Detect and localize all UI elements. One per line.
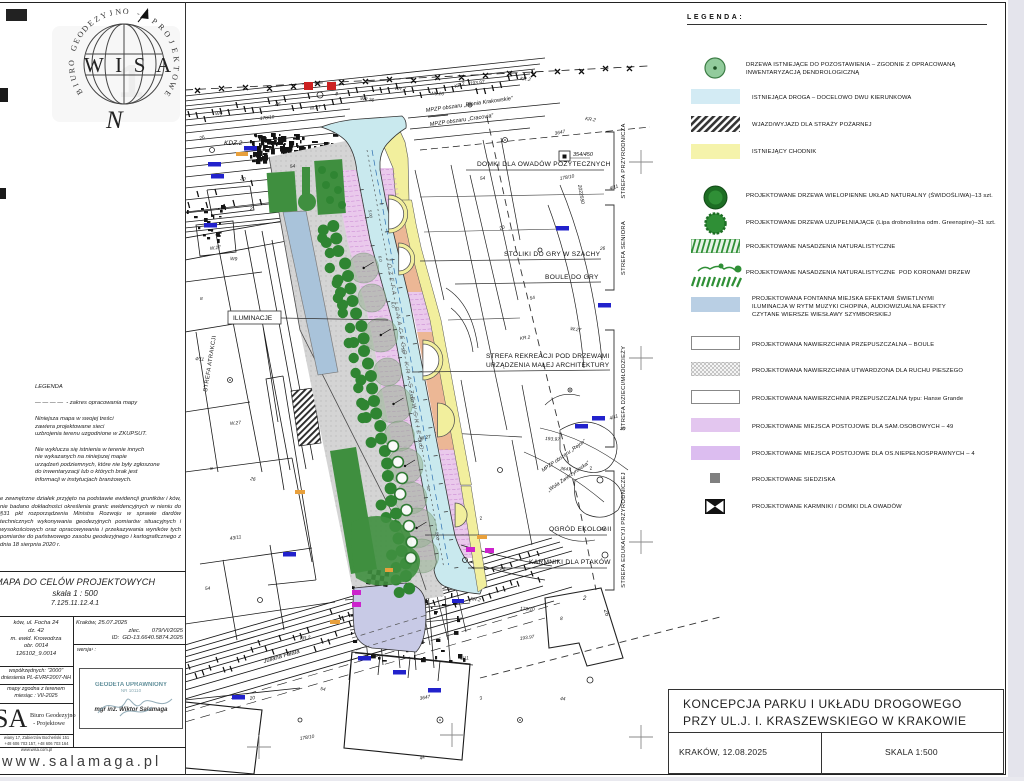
svg-text:W.27: W.27 xyxy=(210,245,222,252)
svg-text:W.27: W.27 xyxy=(230,420,242,427)
svg-text:8: 8 xyxy=(560,616,563,622)
svg-text:20: 20 xyxy=(248,695,256,702)
svg-text:54: 54 xyxy=(529,295,536,302)
svg-text:54: 54 xyxy=(320,686,327,693)
svg-text:KR.2: KR.2 xyxy=(585,116,597,123)
svg-text:B: B xyxy=(74,87,84,96)
svg-text:W.27: W.27 xyxy=(570,326,582,334)
svg-text:178/10: 178/10 xyxy=(260,114,276,122)
svg-text:KR.2: KR.2 xyxy=(520,76,531,83)
svg-text:54: 54 xyxy=(290,163,296,170)
svg-text:2: 2 xyxy=(478,515,484,522)
svg-text:2: 2 xyxy=(582,596,587,602)
svg-text:P: P xyxy=(150,16,159,26)
svg-text:J: J xyxy=(108,8,113,18)
svg-text:Y: Y xyxy=(99,10,108,21)
svg-text:20: 20 xyxy=(619,426,626,432)
svg-text:W8.26: W8.26 xyxy=(430,91,444,97)
svg-text:193.97: 193.97 xyxy=(519,634,535,642)
svg-text:R: R xyxy=(67,67,77,74)
svg-text:KARMNIKI DLA PTAKÓW: KARMNIKI DLA PTAKÓW xyxy=(529,557,611,566)
svg-text:BOULE DO GRY: BOULE DO GRY xyxy=(545,274,599,281)
svg-text:URZĄDZENIA MAŁEJ ARCHITEKTURY: URZĄDZENIA MAŁEJ ARCHITEKTURY xyxy=(486,362,610,369)
svg-text:3647: 3647 xyxy=(560,466,572,473)
svg-text:4/11: 4/11 xyxy=(195,356,205,363)
svg-text:KR.2: KR.2 xyxy=(395,86,406,93)
svg-text:O: O xyxy=(123,7,129,16)
svg-text:8: 8 xyxy=(200,296,203,302)
svg-text:J: J xyxy=(167,39,176,46)
svg-text:W9: W9 xyxy=(230,256,238,263)
svg-text:ILUMINACJE: ILUMINACJE xyxy=(233,315,273,322)
svg-text:DOMKI DLA OWADÓW POŻYTECZNYCH: DOMKI DLA OWADÓW POŻYTECZNYCH xyxy=(477,159,611,168)
svg-text:W9: W9 xyxy=(215,111,223,117)
svg-text:I: I xyxy=(71,82,80,88)
svg-text:E: E xyxy=(162,89,172,98)
svg-text:354/450: 354/450 xyxy=(573,152,594,158)
svg-text:K: K xyxy=(172,56,181,63)
svg-text:-: - xyxy=(136,9,141,18)
svg-text:4/11: 4/11 xyxy=(460,655,470,662)
svg-text:O: O xyxy=(162,29,173,39)
svg-text:N: N xyxy=(105,107,124,134)
svg-text:44: 44 xyxy=(560,696,566,702)
svg-text:43/11: 43/11 xyxy=(229,534,242,542)
svg-text:54: 54 xyxy=(480,176,486,182)
svg-text:26: 26 xyxy=(249,476,257,483)
svg-text:26: 26 xyxy=(599,246,606,252)
svg-text:U: U xyxy=(68,74,78,82)
svg-text:W8.26: W8.26 xyxy=(360,96,375,104)
svg-text:178/10: 178/10 xyxy=(299,734,315,742)
svg-text:193.97: 193.97 xyxy=(470,79,486,87)
svg-text:3: 3 xyxy=(479,695,484,702)
svg-text:KR.2: KR.2 xyxy=(300,635,312,642)
svg-text:N: N xyxy=(115,7,122,17)
svg-text:8: 8 xyxy=(210,466,213,472)
svg-text:W.27: W.27 xyxy=(309,104,321,112)
svg-text:STREFA SENIORA: STREFA SENIORA xyxy=(621,221,627,275)
svg-text:STREFA EDUKACYJI PRZYRODNICZ: STREFA EDUKACYJI PRZYRODNICZEJ xyxy=(621,472,627,588)
svg-text:20: 20 xyxy=(498,224,506,232)
svg-text:T: T xyxy=(172,65,181,71)
svg-text:STOLIKI DO GRY W SZACHY: STOLIKI DO GRY W SZACHY xyxy=(504,251,601,258)
svg-text:26: 26 xyxy=(499,566,506,572)
svg-text:STREFA REKREACJI POD DRZEWAMI: STREFA REKREACJI POD DRZEWAMI xyxy=(486,353,610,360)
svg-text:2022550: 2022550 xyxy=(576,183,586,204)
svg-text:26: 26 xyxy=(274,101,281,108)
svg-text:W I S A: W I S A xyxy=(84,53,174,77)
svg-text:26: 26 xyxy=(602,608,610,618)
svg-text:2: 2 xyxy=(588,465,594,472)
svg-text:O: O xyxy=(170,73,180,81)
svg-text:193.97: 193.97 xyxy=(545,436,560,443)
svg-text:2: 2 xyxy=(249,206,253,212)
svg-text:STREFA PRZYRODNICZA: STREFA PRZYRODNICZA xyxy=(621,123,627,198)
svg-text:178/10: 178/10 xyxy=(559,173,575,182)
svg-text:3647: 3647 xyxy=(419,694,431,702)
svg-text:KDZ.2: KDZ.2 xyxy=(224,140,243,147)
svg-text:20: 20 xyxy=(239,176,246,183)
svg-text:STREFA ATRAKCJI: STREFA ATRAKCJI xyxy=(203,335,218,392)
svg-text:STREFA DZIECI/MŁODZIEŻY: STREFA DZIECI/MŁODZIEŻY xyxy=(620,346,627,431)
svg-text:178/10: 178/10 xyxy=(520,606,535,613)
svg-text:4/11: 4/11 xyxy=(609,183,620,191)
svg-text:4/11: 4/11 xyxy=(609,413,620,422)
svg-text:26: 26 xyxy=(198,134,206,142)
svg-text:E: E xyxy=(170,47,180,54)
svg-text:KR.2: KR.2 xyxy=(519,335,531,342)
svg-text:O: O xyxy=(67,60,76,66)
svg-text:54: 54 xyxy=(205,586,211,592)
